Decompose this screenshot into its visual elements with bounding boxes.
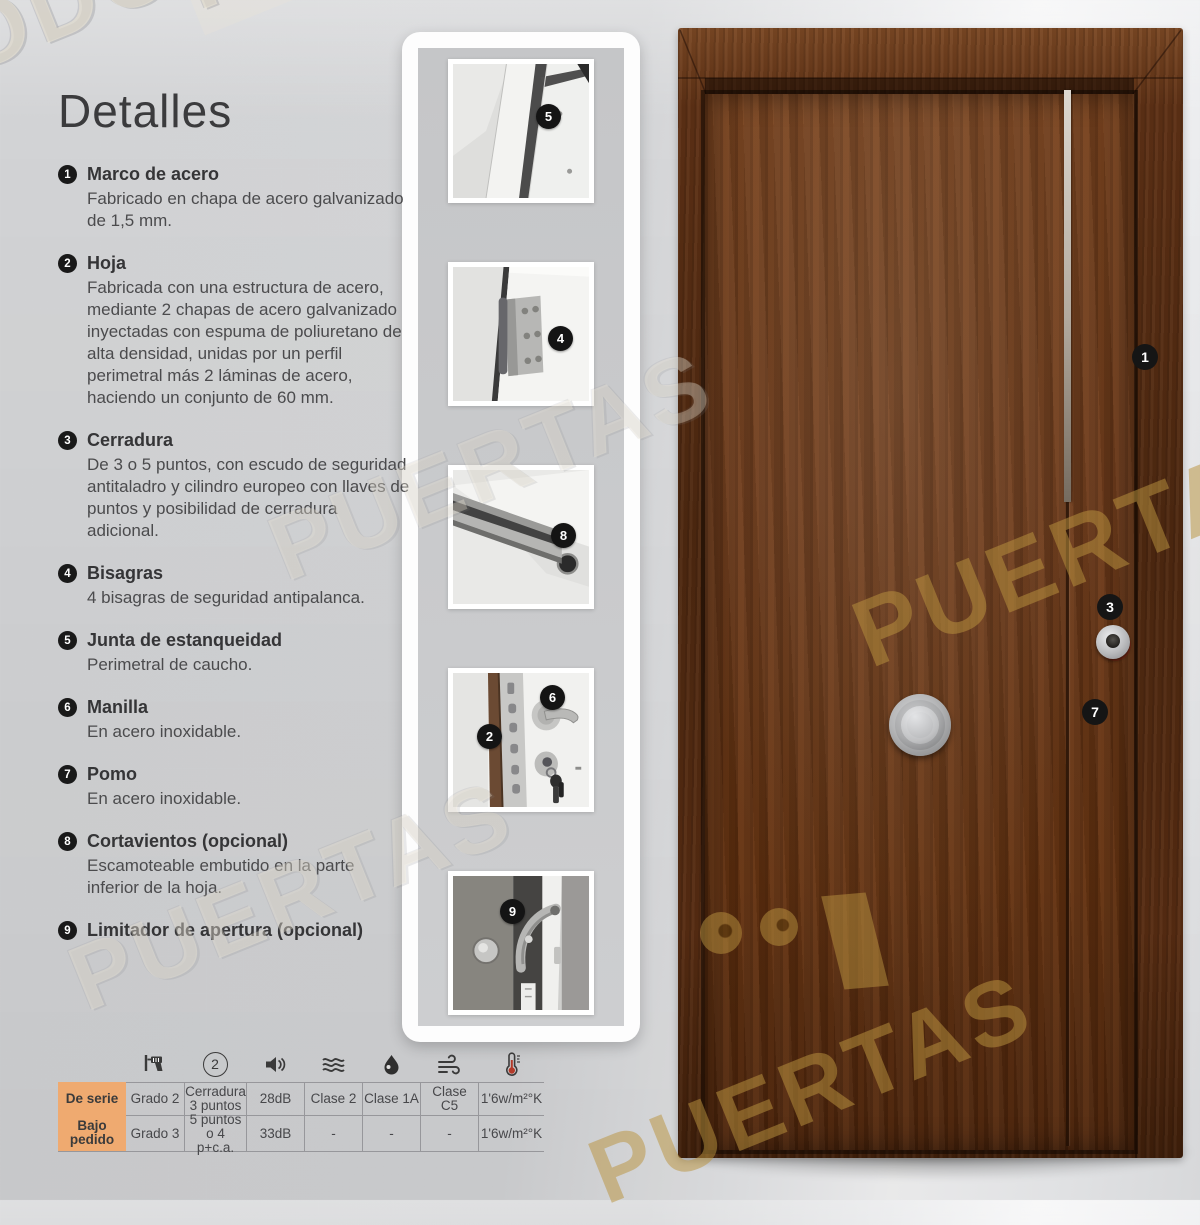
feature-head: 9 Limitador de apertura (opcional) [58, 920, 410, 941]
limitador-illustration [453, 876, 589, 1010]
feature-body: De 3 o 5 puntos, con escudo de seguridad… [87, 454, 410, 542]
feature-body: Perimetral de caucho. [87, 654, 410, 676]
spec-cell: Clase 1A [362, 1082, 420, 1115]
feature-number-badge: 6 [58, 698, 77, 717]
spec-cell: 5 puntos o 4 p+c.a. [184, 1115, 246, 1152]
infographic-page: { "page": { "heading": "Detalles" }, "fe… [0, 0, 1200, 1200]
spec-cell: Clase C5 [420, 1082, 478, 1115]
watermark-text-puertas: PUERTAS [168, 0, 641, 31]
droplet-icon [362, 1051, 420, 1078]
callout-badge: 9 [500, 899, 525, 924]
feature-number-badge: 8 [58, 832, 77, 851]
feature-body: Escamoteable embutido en la parte inferi… [87, 855, 410, 899]
feature-number-badge: 7 [58, 765, 77, 784]
spec-row-de-serie: De serie Grado 2 Cerradura 3 puntos 28dB… [58, 1082, 544, 1115]
feature-junta: 5 Junta de estanqueidad Perimetral de ca… [58, 630, 410, 676]
feature-head: 1 Marco de acero [58, 164, 410, 185]
feature-title: Junta de estanqueidad [87, 630, 282, 651]
feature-limitador: 9 Limitador de apertura (opcional) [58, 920, 410, 941]
feature-number-badge: 3 [58, 431, 77, 450]
spec-cell: - [304, 1115, 362, 1152]
feature-hoja: 2 Hoja Fabricada con una estructura de a… [58, 253, 410, 409]
callout-badge: 8 [551, 523, 576, 548]
feature-head: 6 Manilla [58, 697, 410, 718]
feature-pomo: 7 Pomo En acero inoxidable. [58, 764, 410, 810]
door-marker-pomo: 7 [1082, 699, 1108, 725]
feature-title: Cerradura [87, 430, 173, 451]
spec-cell: 33dB [246, 1115, 304, 1152]
feature-marco: 1 Marco de acero Fabricado en chapa de a… [58, 164, 410, 232]
drill-icon [126, 1051, 184, 1078]
feature-title: Hoja [87, 253, 126, 274]
feature-title: Bisagras [87, 563, 163, 584]
speaker-icon [246, 1051, 304, 1078]
feature-body: Fabricada con una estructura de acero, m… [87, 277, 410, 409]
spec-cell: Clase 2 [304, 1082, 362, 1115]
feature-title: Marco de acero [87, 164, 219, 185]
spec-cell: - [362, 1115, 420, 1152]
detail-photo-strip: 5 4 [402, 32, 640, 1042]
lock-cylinder [1096, 625, 1130, 659]
feature-body: Fabricado en chapa de acero galvanizado … [87, 188, 410, 232]
callout-badge: 2 [477, 724, 502, 749]
spec-table: 2 [58, 1046, 544, 1152]
spec-cell: Cerradura 3 puntos [184, 1082, 246, 1115]
feature-title: Pomo [87, 764, 137, 785]
photo-bisagra: 4 [448, 262, 594, 406]
feature-cerradura: 3 Cerradura De 3 o 5 puntos, con escudo … [58, 430, 410, 542]
feature-number-badge: 4 [58, 564, 77, 583]
page-title: Detalles [58, 84, 410, 138]
feature-title: Manilla [87, 697, 148, 718]
feature-number-badge: 1 [58, 165, 77, 184]
lock-points-icon: 2 [184, 1052, 246, 1077]
photo-limitador: 9 [448, 871, 594, 1015]
frame-edge-line [1135, 90, 1137, 1158]
lock-points-count: 2 [203, 1052, 228, 1077]
feature-cortavientos: 8 Cortavientos (opcional) Escamoteable e… [58, 831, 410, 899]
feature-title: Cortavientos (opcional) [87, 831, 288, 852]
junta-illustration [453, 64, 589, 198]
photo-cerradura-manilla: 6 2 [448, 668, 594, 812]
steel-inlay-strip [1064, 90, 1071, 502]
spec-cell: Grado 3 [126, 1115, 184, 1152]
feature-head: 5 Junta de estanqueidad [58, 630, 410, 651]
feature-title: Limitador de apertura (opcional) [87, 920, 363, 941]
callout-badge: 6 [540, 685, 565, 710]
photo-strip-inner: 5 4 [418, 48, 624, 1026]
spec-cell: - [420, 1115, 478, 1152]
feature-head: 2 Hoja [58, 253, 410, 274]
spec-row-bajo-pedido: Bajo pedido Grado 3 5 puntos o 4 p+c.a. … [58, 1115, 544, 1152]
feature-number-badge: 2 [58, 254, 77, 273]
cerradura-illustration [453, 673, 589, 807]
feature-head: 3 Cerradura [58, 430, 410, 451]
feature-head: 8 Cortavientos (opcional) [58, 831, 410, 852]
photo-junta-estanqueidad: 5 [448, 59, 594, 203]
feature-bisagras: 4 Bisagras 4 bisagras de seguridad antip… [58, 563, 410, 609]
feature-head: 4 Bisagras [58, 563, 410, 584]
spec-cell: 1'6w/m²°K [478, 1082, 544, 1115]
row-label: Bajo pedido [58, 1115, 126, 1152]
waves-icon [304, 1051, 362, 1078]
door-marker-cerradura: 3 [1097, 594, 1123, 620]
spec-icons-row: 2 [58, 1046, 544, 1082]
row-label: De serie [58, 1082, 126, 1115]
callout-badge: 5 [536, 104, 561, 129]
feature-body: 4 bisagras de seguridad antipalanca. [87, 587, 410, 609]
door-marker-frame: 1 [1132, 344, 1158, 370]
wind-icon [420, 1051, 478, 1078]
callout-badge: 4 [548, 326, 573, 351]
photo-cortavientos: 8 [448, 465, 594, 609]
door-knob [889, 694, 951, 756]
feature-head: 7 Pomo [58, 764, 410, 785]
spec-cell: 28dB [246, 1082, 304, 1115]
feature-body: En acero inoxidable. [87, 721, 410, 743]
door-photo: 1 3 7 [678, 28, 1183, 1158]
feature-number-badge: 9 [58, 921, 77, 940]
thermometer-icon [478, 1051, 544, 1078]
spec-cell: Grado 2 [126, 1082, 184, 1115]
feature-body: En acero inoxidable. [87, 788, 410, 810]
spec-cell: 1'6w/m²°K [478, 1115, 544, 1152]
door-groove [1066, 502, 1069, 1146]
feature-manilla: 6 Manilla En acero inoxidable. [58, 697, 410, 743]
feature-number-badge: 5 [58, 631, 77, 650]
details-panel: Detalles 1 Marco de acero Fabricado en c… [58, 84, 410, 962]
